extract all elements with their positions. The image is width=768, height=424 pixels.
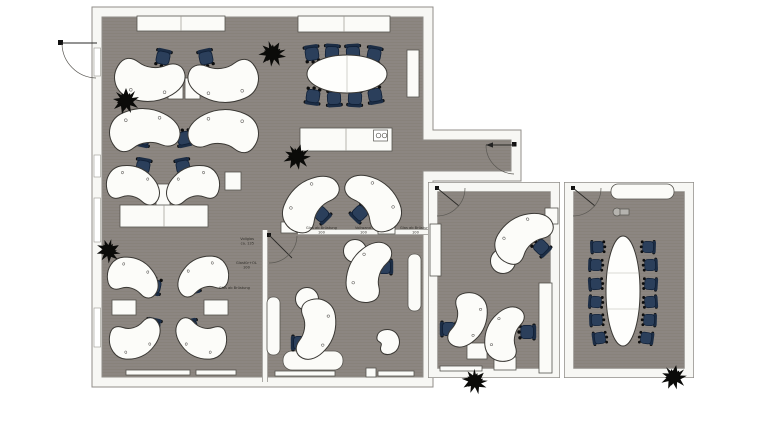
floor-plan-drawing: Glas ab Brüstung 100 Vollwand 100 Glas a… [0,0,768,424]
annotation: Glastür+OL [236,261,257,265]
sideboard [611,184,674,199]
window [94,48,101,76]
sideboard [267,297,280,355]
window [94,308,101,347]
radiator [126,370,190,375]
radiator [440,366,482,371]
office-chair [641,294,658,310]
desk-connector [112,300,136,315]
office-chair [590,239,607,254]
radiator [275,371,335,376]
door-swing-icon [58,40,97,78]
annotation: 100 [318,231,326,235]
annotation: Glas ab Brüstung [306,226,337,230]
annotation: 100 [243,266,251,270]
annotation: 100 [360,231,368,235]
desk-return [225,172,241,190]
office-chair [640,239,657,254]
annotation: Glas ab Brüstung [219,286,250,290]
annotation: Vollglas [240,237,254,241]
desk-connector [467,343,487,359]
sideboard [408,254,421,311]
office-chair [641,312,658,327]
sink-icon [374,130,388,141]
middle-right-office [430,186,558,399]
office-chair [588,276,605,292]
conference-table [606,236,640,346]
window [94,198,101,242]
sideboard [430,224,441,276]
radiator [378,371,414,376]
window [94,155,101,177]
office-chair [642,258,659,273]
radiator [196,370,236,375]
sideboard [407,50,419,97]
office-chair [641,276,658,292]
annotation: ca. 135 [241,242,254,246]
annotation: 100 [412,231,420,235]
wall-post [366,368,376,377]
annotation: Vollwand [355,226,371,230]
office-chair [588,258,605,273]
floor-plan-canvas: Glas ab Brüstung 100 Vollwand 100 Glas a… [0,0,768,424]
sideboard [539,283,552,373]
right-conference-room [569,184,689,392]
projector-icon [613,208,629,216]
office-chair [589,312,606,327]
annotation: Glas ab Brüstung [400,226,431,230]
office-chair [588,294,605,310]
desk-connector [204,300,228,315]
kitchenette-counter [300,128,392,151]
